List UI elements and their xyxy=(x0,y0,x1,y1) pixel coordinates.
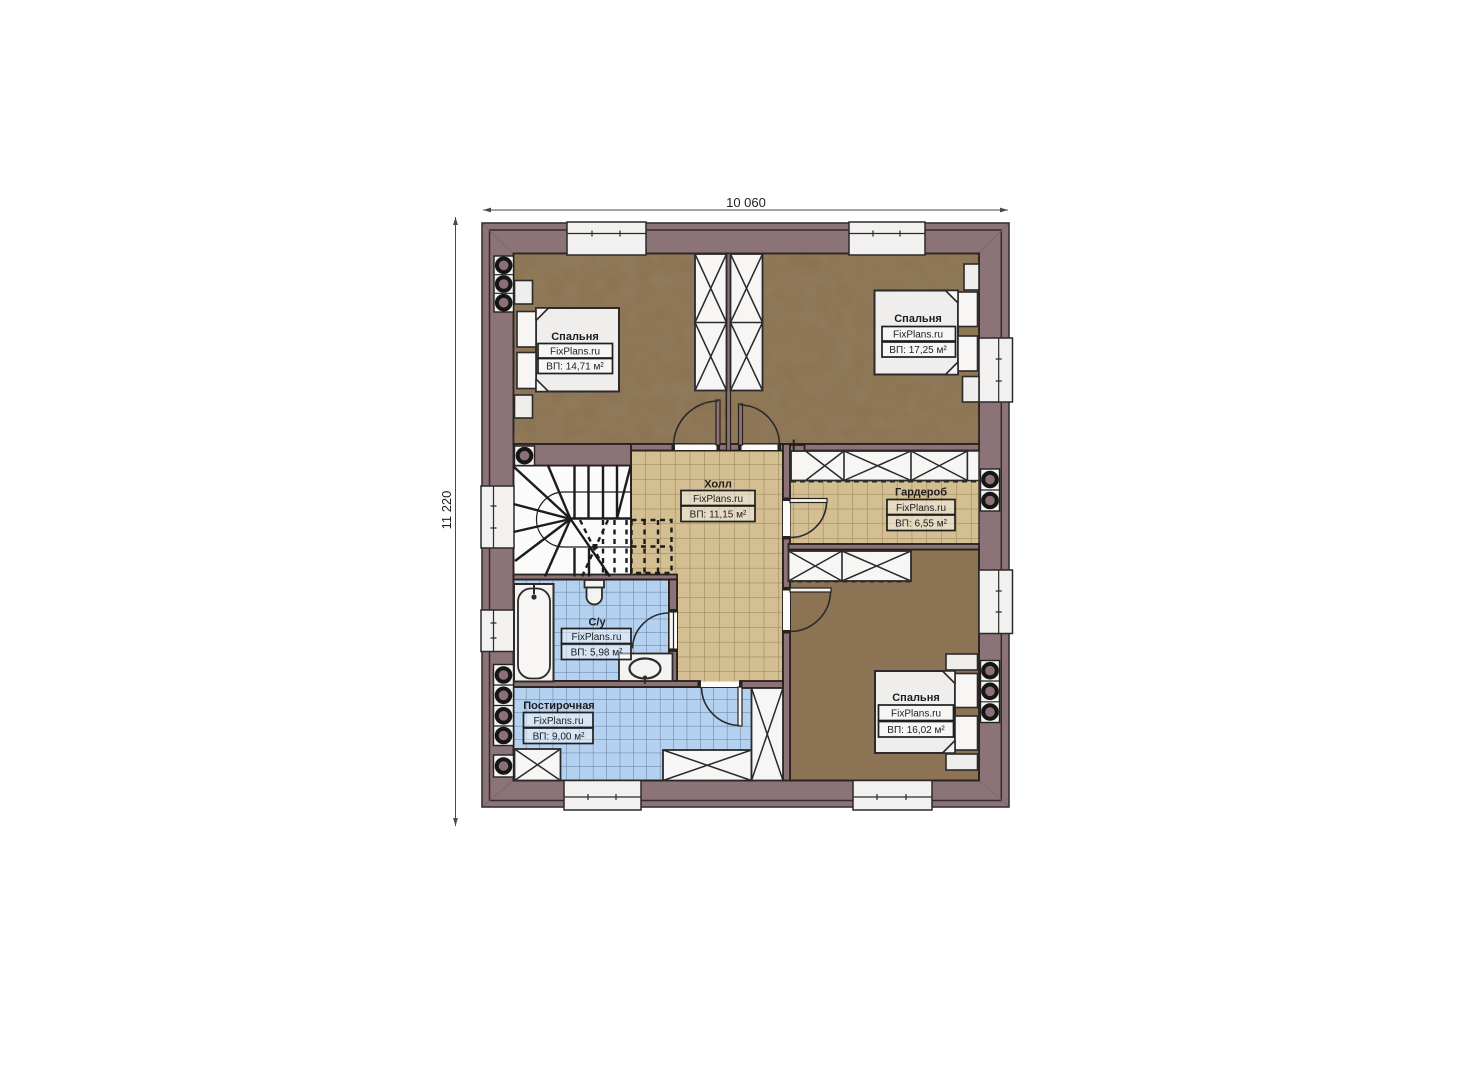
svg-text:FixPlans.ru: FixPlans.ru xyxy=(891,709,941,720)
svg-text:ВП: 5,98 м²: ВП: 5,98 м² xyxy=(571,648,624,659)
svg-text:Гардероб: Гардероб xyxy=(895,487,947,499)
svg-text:ВП: 9,00 м²: ВП: 9,00 м² xyxy=(533,732,586,743)
svg-text:Спальня: Спальня xyxy=(551,331,599,343)
svg-text:FixPlans.ru: FixPlans.ru xyxy=(896,503,946,514)
svg-text:FixPlans.ru: FixPlans.ru xyxy=(693,494,743,505)
svg-text:ВП: 17,25 м²: ВП: 17,25 м² xyxy=(889,345,947,356)
svg-text:FixPlans.ru: FixPlans.ru xyxy=(550,347,600,358)
svg-text:Постирочная: Постирочная xyxy=(523,700,594,712)
svg-text:ВП: 14,71 м²: ВП: 14,71 м² xyxy=(546,362,604,373)
svg-text:ВП: 16,02 м²: ВП: 16,02 м² xyxy=(887,725,945,736)
svg-text:10 060: 10 060 xyxy=(726,195,766,210)
svg-text:FixPlans.ru: FixPlans.ru xyxy=(571,632,621,643)
svg-text:11 220: 11 220 xyxy=(439,491,454,530)
svg-text:FixPlans.ru: FixPlans.ru xyxy=(893,330,943,341)
svg-text:Спальня: Спальня xyxy=(892,692,940,704)
svg-text:ВП: 6,55 м²: ВП: 6,55 м² xyxy=(895,519,948,530)
svg-text:FixPlans.ru: FixPlans.ru xyxy=(533,716,583,727)
svg-text:ВП: 11,15 м²: ВП: 11,15 м² xyxy=(690,510,747,521)
svg-text:С/у: С/у xyxy=(588,617,606,629)
svg-text:Спальня: Спальня xyxy=(894,313,942,325)
svg-text:Холл: Холл xyxy=(704,479,732,491)
